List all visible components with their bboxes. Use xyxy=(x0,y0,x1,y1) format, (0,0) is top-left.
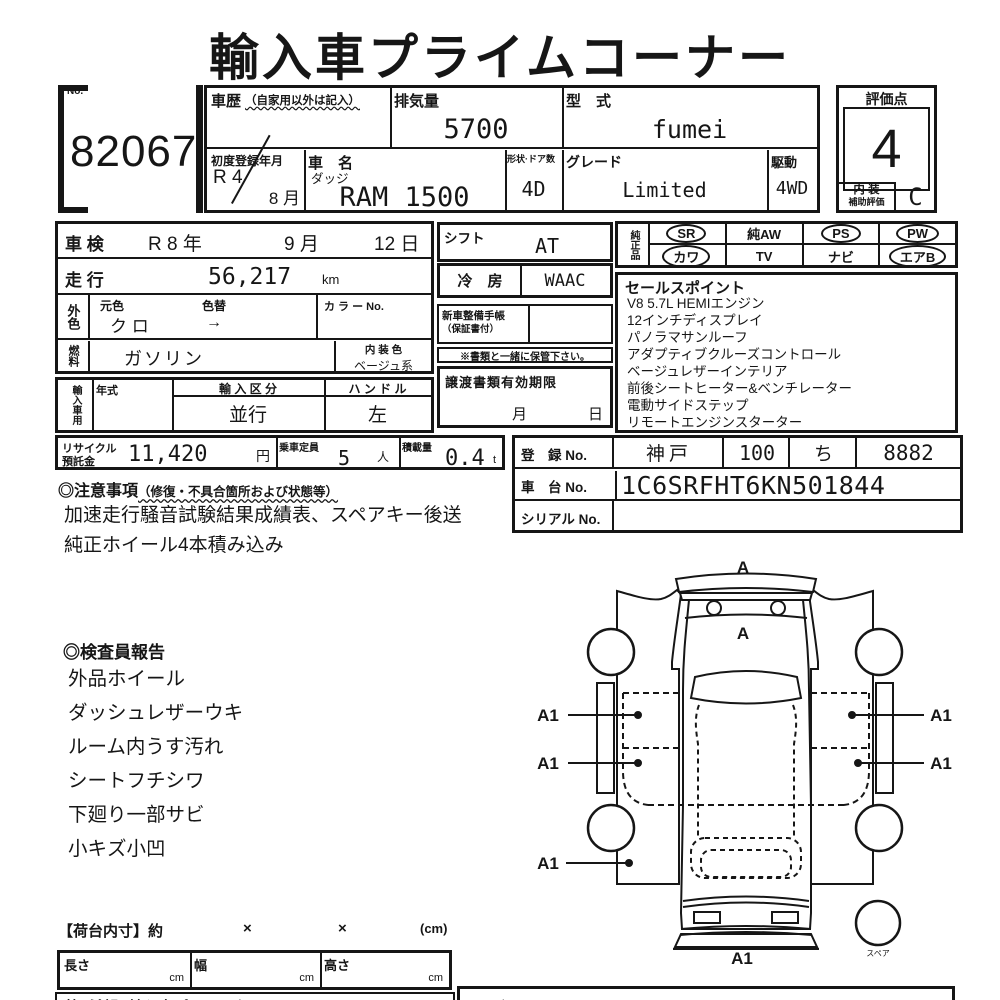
shift-label: シフト xyxy=(444,227,485,247)
lot-no-label: No. xyxy=(67,86,83,97)
import-label-cell: 輸入車用 xyxy=(58,380,94,430)
header-table: 車歴 （自家用以外は記入） 排気量 5700 型 式 fumei 初度登録年月 … xyxy=(204,85,820,213)
wheel-rear-left xyxy=(588,805,634,851)
bed-x1: × xyxy=(243,920,252,937)
handle-cell: ハ ン ド ル 左 xyxy=(324,380,431,430)
history-cell: 車歴 （自家用以外は記入） xyxy=(207,88,392,147)
wheel-front-left xyxy=(588,629,634,675)
mark-left3: A1 xyxy=(537,854,559,873)
genuine-item-airb: エアB xyxy=(878,243,955,268)
fuel-row: 燃料 ガソリン 内 装 色 ベージュ系 xyxy=(58,341,431,372)
bed-width-label: 幅 xyxy=(194,955,207,974)
genuine-box: 純正品 SR 純AW PS PW カワ TV ナビ エアB xyxy=(615,221,958,268)
chassis-label: 車 台 No. xyxy=(521,476,587,496)
int-color-value: ベージュ系 xyxy=(336,357,431,374)
import-box: 輸入車用 年式 輸 入 区 分 並行 ハ ン ド ル 左 xyxy=(55,377,434,433)
mark-front: A xyxy=(737,558,749,577)
notes-heading: ◎注意事項（修復・不具合箇所および状態等） xyxy=(58,477,338,501)
genuine-label-cell: 純正品 xyxy=(618,224,650,265)
notes-line2: 純正ホイール4本積み込み xyxy=(64,530,284,557)
shaken-label: 車 検 xyxy=(65,230,104,255)
wish-text: 第1希望:(輸入車プライムタイム) xyxy=(65,996,283,1000)
bed-length-cell: 長さ cm xyxy=(60,953,192,987)
inspector-item: シートフチシワ xyxy=(68,764,243,798)
handle-value: 左 xyxy=(324,397,431,429)
inspector-item: 外品ホイール xyxy=(68,662,243,696)
recycle-amount: 11,420 xyxy=(128,442,207,467)
color-no-cell: カ ラ ー No. xyxy=(316,295,431,338)
shift-value: AT xyxy=(535,234,559,258)
capacity-value: 5 xyxy=(338,446,350,470)
load-cell: 積載量 0.4 t xyxy=(399,438,502,467)
base-color-value: ク ロ xyxy=(110,312,149,337)
left-side-panel xyxy=(588,590,681,884)
notes-head: ◎注意事項 xyxy=(58,483,138,500)
mileage-row: 走 行 56,217 km xyxy=(58,260,431,295)
inspector-heading: ◎検査員報告 xyxy=(63,638,165,663)
model-code-cell: 型 式 fumei xyxy=(562,88,817,147)
genuine-item-ps: PS xyxy=(802,224,879,243)
doors-label: 形状·ドア数 xyxy=(507,152,555,165)
import-class-label: 輸 入 区 分 xyxy=(172,380,324,397)
grade-value: Limited xyxy=(562,178,767,202)
shaken-day: 12 日 xyxy=(374,229,419,256)
wish-box: 第1希望:(輸入車プライムタイム) xyxy=(55,992,455,1000)
wheel-rear-right xyxy=(856,805,902,851)
bed-height-cm: cm xyxy=(428,972,443,984)
handle-label: ハ ン ド ル xyxy=(324,380,431,397)
mark-hood: A xyxy=(737,624,749,643)
bed-table: 長さ cm 幅 cm 高さ cm xyxy=(57,950,452,990)
service-book-line2: （保証書付） xyxy=(442,323,528,336)
service-book-label-cell: 新車整備手帳 （保証書付） xyxy=(439,306,530,342)
sales-point: ベージュレザーインテリア xyxy=(627,363,953,380)
doors-value: 4D xyxy=(505,177,562,201)
interior-line1: 内 装 xyxy=(839,184,894,197)
spare-label: スペア xyxy=(866,949,889,958)
sales-point: 前後シートヒーター&ベンチレーター xyxy=(627,380,953,397)
ac-value: WAAC xyxy=(520,266,610,295)
reg-area: 神戸 xyxy=(612,438,724,467)
serial-row: シリアル No. xyxy=(515,501,960,530)
ac-label: 冷 房 xyxy=(440,266,522,295)
genuine-item-sr: SR xyxy=(648,224,725,243)
inspector-item: 小キズ小凹 xyxy=(68,832,243,866)
keep-note-strip: ※書類と一緒に保管下さい。 xyxy=(437,347,613,363)
sales-point: V8 5.7L HEMIエンジン xyxy=(627,295,953,312)
wheel-front-right xyxy=(856,629,902,675)
mileage-label: 走 行 xyxy=(65,266,104,291)
inspector-item: 下廻り一部サビ xyxy=(68,798,243,832)
genuine-item-kawa: カワ xyxy=(648,243,725,268)
int-color-cell: 内 装 色 ベージュ系 xyxy=(334,341,431,372)
drive-cell: 駆動 4WD xyxy=(767,150,817,211)
notes-line1: 加速走行騒音試験結果成績表、スペアキー後送 xyxy=(64,500,462,527)
recycle-cell: リサイクル 預託金 11,420 円 xyxy=(58,438,278,467)
displacement-cell: 排気量 5700 xyxy=(390,88,564,147)
color-change-arrow: → xyxy=(206,314,222,332)
sales-point: アダプティブクルーズコントロール xyxy=(627,346,953,363)
mark-left2: A1 xyxy=(537,754,559,773)
reg-label: 登 録 No. xyxy=(521,444,587,464)
chassis-row: 車 台 No. 1C6SRFHT6KN501844 xyxy=(515,470,960,501)
bed-heading: 【荷台内寸】約 xyxy=(58,920,163,941)
first-reg-cell: 初度登録年月 R 4 8 月 xyxy=(207,150,306,211)
mileage-unit: km xyxy=(322,272,339,287)
shaken-month: 9 月 xyxy=(284,229,319,256)
bed-x2: × xyxy=(338,920,347,937)
mark-right1: A1 xyxy=(930,706,952,725)
auction-sheet: 輸入車プライムコーナー No. 82067 車歴 （自家用以外は記入） 排気量 … xyxy=(0,0,1000,1000)
bed-unit: (cm) xyxy=(420,921,447,936)
divider-bar xyxy=(196,85,203,213)
bed-width-cell: 幅 cm xyxy=(190,953,322,987)
car-name-cell: 車 名 ダッジ RAM 1500 xyxy=(304,150,507,211)
genuine-item-tv: TV xyxy=(725,243,802,268)
shift-box: シフト AT xyxy=(437,222,613,262)
bed-heading-row: 【荷台内寸】約 × × (cm) xyxy=(58,920,458,942)
import-class-cell: 輸 入 区 分 並行 xyxy=(172,380,326,430)
page-title: 輸入車プライムコーナー xyxy=(0,18,1000,90)
grade-label: グレード xyxy=(566,152,622,172)
first-reg-year: R 4 xyxy=(213,167,243,189)
genuine-item-aw: 純AW xyxy=(725,224,802,243)
ext-color-label-cell: 外色 xyxy=(58,295,90,338)
bed-height-cell: 高さ cm xyxy=(320,953,449,987)
service-book-box: 新車整備手帳 （保証書付） xyxy=(437,304,613,344)
import-class-value: 並行 xyxy=(172,397,324,429)
import-label: 輸入車用 xyxy=(70,385,80,425)
car-name-value: RAM 1500 xyxy=(304,182,505,213)
reg-class: 100 xyxy=(722,438,790,467)
transfer-label: 譲渡書類有効期限 xyxy=(445,372,557,391)
windshield xyxy=(691,671,801,704)
genuine-grid: SR 純AW PS PW カワ TV ナビ エアB xyxy=(648,224,955,265)
registration-table: 登 録 No. 神戸 100 ち 8882 車 台 No. 1C6SRFHT6K… xyxy=(512,435,963,533)
history-note: （自家用以外は記入） xyxy=(245,92,360,108)
reg-kana: ち xyxy=(788,438,857,467)
year-type-cell: 年式 xyxy=(92,380,174,430)
lot-box: No. 82067 xyxy=(58,85,196,213)
genuine-item-navi: ナビ xyxy=(802,243,879,268)
shaken-row: 車 検 R 8 年 9 月 12 日 xyxy=(58,224,431,259)
reg-number: 8882 xyxy=(855,438,960,467)
serial-label: シリアル No. xyxy=(521,508,600,528)
bed-width-cm: cm xyxy=(299,972,314,984)
model-code-value: fumei xyxy=(562,115,817,144)
history-label: 車歴 xyxy=(211,90,241,111)
int-color-label: 内 装 色 xyxy=(336,342,431,357)
load-label: 積載量 xyxy=(402,439,432,454)
sales-points-box: セールスポイント V8 5.7L HEMIエンジン 12インチディスプレイ パノ… xyxy=(615,272,958,433)
mark-rear: A1 xyxy=(731,949,753,968)
chassis-value: 1C6SRFHT6KN501844 xyxy=(615,471,960,499)
capacity-label: 乗車定員 xyxy=(279,439,319,454)
transfer-day: 日 xyxy=(588,403,603,424)
interior-line2: 補助評価 xyxy=(839,197,894,207)
damage-diagram: A A A1 A1 A1 A1 A1 A1 スペア xyxy=(480,555,1000,980)
doors-cell: 形状·ドア数 4D xyxy=(505,150,564,211)
sales-point: 12インチディスプレイ xyxy=(627,312,953,329)
mark-right2: A1 xyxy=(930,754,952,773)
mileage-value: 56,217 xyxy=(208,264,291,290)
displacement-label: 排気量 xyxy=(394,90,439,111)
load-unit: t xyxy=(493,454,496,466)
transfer-box: 譲渡書類有効期限 月 日 xyxy=(437,366,613,428)
displacement-value: 5700 xyxy=(390,114,562,145)
fuel-value: ガソリン xyxy=(124,345,204,371)
recycle-label2: 預託金 xyxy=(62,453,95,469)
rating-score: 4 xyxy=(843,107,930,191)
model-code-label: 型 式 xyxy=(566,90,611,111)
capacity-unit: 人 xyxy=(377,448,389,465)
reg-row: 登 録 No. 神戸 100 ち 8882 xyxy=(515,438,960,469)
color-row: 外色 元色 色替 ク ロ → カ ラ ー No. xyxy=(58,295,431,340)
rating-box: 評価点 4 内 装 補助評価 C xyxy=(836,85,937,213)
footer-right-box: 入庫No. xyxy=(457,986,955,1000)
sales-point: リモートエンジンスターター xyxy=(627,414,953,431)
inspector-list: 外品ホイール ダッシュレザーウキ ルーム内うす汚れ シートフチシワ 下廻り一部サ… xyxy=(68,662,243,866)
fuel-label-cell: 燃料 xyxy=(58,341,90,372)
ac-box: 冷 房 WAAC xyxy=(437,263,613,298)
mark-left1: A1 xyxy=(537,706,559,725)
serial-value xyxy=(612,501,960,530)
interior-rating-label: 内 装 補助評価 xyxy=(839,182,896,210)
sales-points-list: V8 5.7L HEMIエンジン 12インチディスプレイ パノラマサンルーフ ア… xyxy=(627,295,953,431)
right-side-panel xyxy=(809,590,902,884)
bracket-left xyxy=(58,85,64,213)
fuel-label: 燃料 xyxy=(65,345,81,367)
grade-cell: グレード Limited xyxy=(562,150,769,211)
taillight-right xyxy=(772,912,798,923)
transfer-month: 月 xyxy=(512,403,527,424)
rear-bumper xyxy=(675,934,817,947)
shaken-year: R 8 年 xyxy=(148,229,202,256)
notes-head-note: （修復・不具合箇所および状態等） xyxy=(138,485,338,499)
genuine-label: 純正品 xyxy=(628,230,638,260)
year-type-label: 年式 xyxy=(96,382,118,398)
spare-tire xyxy=(856,901,900,945)
recycle-yen: 円 xyxy=(256,446,270,466)
recycle-box: リサイクル 預託金 11,420 円 乗車定員 5 人 積載量 0.4 t xyxy=(55,435,505,470)
keep-note: ※書類と一緒に保管下さい。 xyxy=(460,348,590,363)
first-reg-month: 8 月 xyxy=(269,184,300,209)
capacity-cell: 乗車定員 5 人 xyxy=(276,438,401,467)
bed-length-label: 長さ xyxy=(64,955,90,974)
color-no-label: カ ラ ー No. xyxy=(324,298,384,314)
bed-length-cm: cm xyxy=(169,972,184,984)
sales-point: パノラマサンルーフ xyxy=(627,329,953,346)
service-book-line1: 新車整備手帳 xyxy=(442,309,528,323)
color-change-label: 色替 xyxy=(202,297,226,314)
inspector-item: ルーム内うす汚れ xyxy=(68,730,243,764)
lot-number: 82067 xyxy=(70,127,197,177)
rating-label: 評価点 xyxy=(839,89,934,109)
ext-color-label: 外色 xyxy=(64,304,83,330)
genuine-item-pw: PW xyxy=(878,224,955,243)
vehicle-table: 車 検 R 8 年 9 月 12 日 走 行 56,217 km 外色 元色 色… xyxy=(55,221,434,374)
taillight-left xyxy=(694,912,720,923)
load-value: 0.4 xyxy=(445,446,485,471)
drive-value: 4WD xyxy=(767,178,817,199)
drive-label: 駆動 xyxy=(771,152,797,171)
inspector-item: ダッシュレザーウキ xyxy=(68,696,243,730)
interior-grade: C xyxy=(897,184,934,210)
sales-point: 電動サイドステップ xyxy=(627,397,953,414)
bracket-bottom-stub xyxy=(58,207,88,213)
bed-height-label: 高さ xyxy=(324,955,350,974)
